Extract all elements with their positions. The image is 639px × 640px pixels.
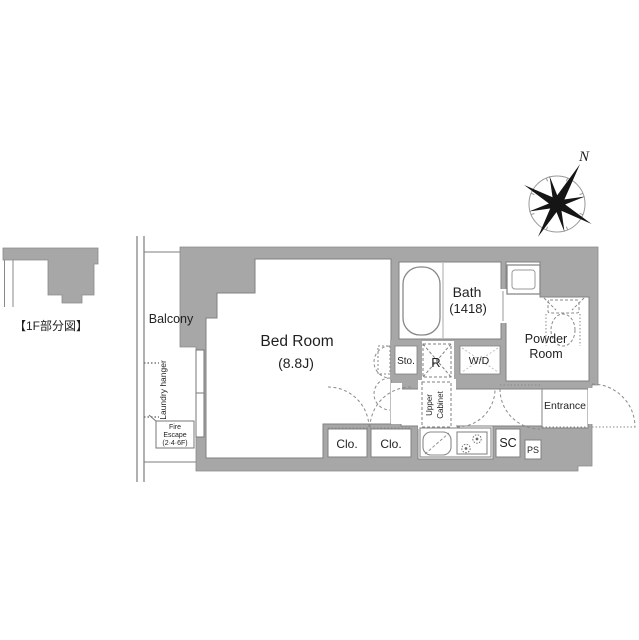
floor-plan-page: N: [0, 0, 639, 640]
partial-plan-label: 【1F部分図】: [14, 318, 88, 333]
storage-label: Sto.: [397, 356, 415, 367]
washer-dryer-label: W/D: [469, 355, 490, 367]
closet-1-label: Clo.: [336, 437, 357, 451]
partial-plan-walls: [3, 248, 98, 303]
bath-door: [500, 289, 507, 323]
fire-escape-label-line1: Fire: [169, 424, 181, 431]
fire-escape-label-line2: Escape: [163, 432, 186, 439]
bedroom-label: Bed Room: [260, 333, 333, 350]
washbasin: [507, 265, 540, 294]
upper-cabinet-label-line1: Upper: [425, 394, 434, 416]
powder-room-label-line1: Powder: [525, 332, 567, 346]
compass-north-label: N: [578, 149, 590, 165]
balcony-label: Balcony: [149, 312, 194, 326]
entrance-door-arc: [592, 384, 635, 427]
powder-room-label-line2: Room: [529, 347, 562, 361]
partial-plan-1f: [3, 248, 98, 307]
entrance-label: Entrance: [544, 400, 586, 412]
bath-label: Bath: [453, 284, 482, 300]
refrigerator-label: R: [431, 355, 440, 370]
shoe-cabinet-label: SC: [499, 436, 516, 450]
bathtub: [403, 263, 443, 338]
closet-2-label: Clo.: [380, 437, 401, 451]
entrance-door-opening: [588, 388, 594, 424]
stove: [457, 432, 487, 454]
floor-plan-drawing: N: [0, 0, 639, 640]
laundry-hanger-label: Laundry hanger: [158, 360, 168, 420]
kitchen-counter: [420, 428, 491, 457]
compass: [505, 145, 615, 257]
bedroom-size-label: (8.8J): [278, 355, 314, 371]
door-passage: [391, 383, 402, 424]
compass-star: [505, 145, 615, 257]
bedroom-window: [196, 350, 204, 437]
upper-cabinet-label-line2: Cabinet: [436, 390, 445, 418]
laundry-hanger-marks: [144, 363, 159, 417]
fire-escape-label-line3: (2·4·6F): [162, 440, 187, 447]
bath-size-label: (1418): [449, 301, 487, 316]
pipe-space-label: PS: [527, 445, 539, 455]
